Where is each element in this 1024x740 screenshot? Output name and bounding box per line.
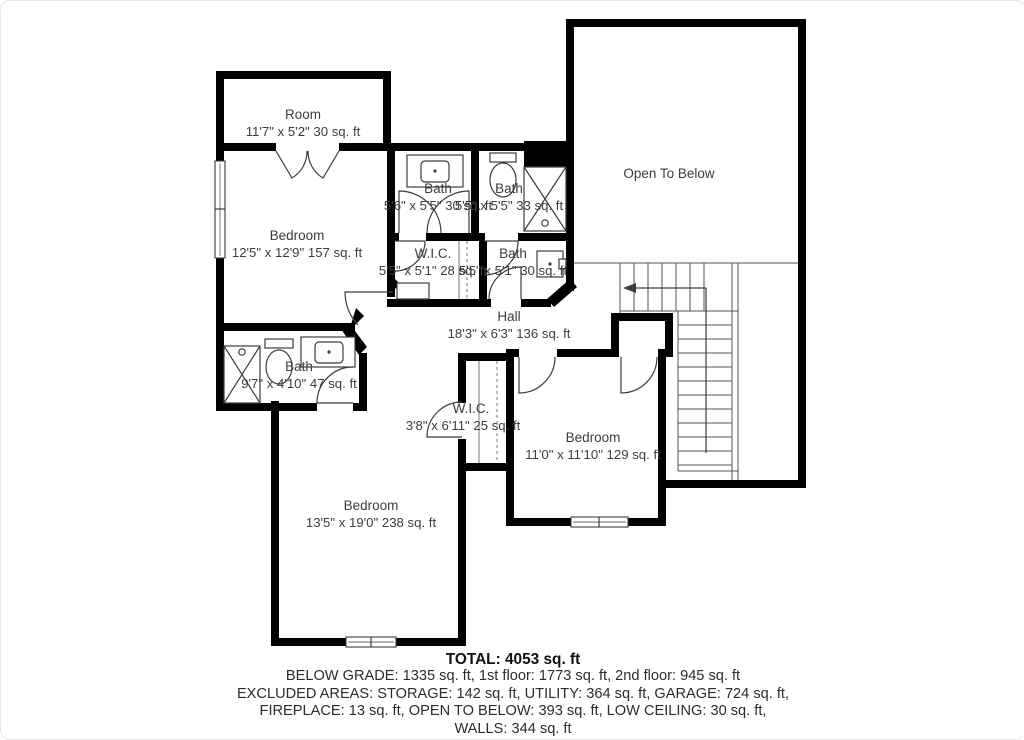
bedroom3-label-dims: 13'5" x 19'0" 238 sq. ft xyxy=(306,515,437,530)
bath4-label-dims: 9'7" x 4'10" 47 sq. ft xyxy=(241,376,357,391)
bedroom1-label-dims: 12'5" x 12'9" 157 sq. ft xyxy=(232,245,363,260)
room-label-dims: 11'7" x 5'2" 30 sq. ft xyxy=(246,124,361,139)
window-bedroom3 xyxy=(346,637,396,647)
floor-plan-drawing: Room 11'7" x 5'2" 30 sq. ft Bedroom 12'5… xyxy=(1,1,1024,739)
area-summary: TOTAL: 4053 sq. ft BELOW GRADE: 1335 sq.… xyxy=(1,651,1024,738)
wic2-label-name: W.I.C. xyxy=(453,401,490,416)
summary-line-walls: WALLS: 344 sq. ft xyxy=(1,721,1024,738)
window-bedroom1 xyxy=(215,161,225,258)
window-bedroom2 xyxy=(571,517,628,527)
floor-plan-page: Room 11'7" x 5'2" 30 sq. ft Bedroom 12'5… xyxy=(0,0,1024,740)
bedroom2-closet-door xyxy=(621,357,657,393)
summary-line-excluded: EXCLUDED AREAS: STORAGE: 142 sq. ft, UTI… xyxy=(1,686,1024,703)
bath3-label-dims: 5'5" x 5'1" 30 sq. ft xyxy=(459,263,568,278)
open-to-below-label: Open To Below xyxy=(623,166,715,181)
bath4-label-name: Bath xyxy=(285,359,313,374)
bath1-label-name: Bath xyxy=(424,181,452,196)
wic2-label-dims: 3'8" x 6'11" 25 sq. ft xyxy=(406,418,521,433)
bath3-label-name: Bath xyxy=(499,246,527,261)
summary-line-features: FIREPLACE: 13 sq. ft, OPEN TO BELOW: 393… xyxy=(1,703,1024,720)
double-door-right xyxy=(308,151,339,178)
summary-total: TOTAL: 4053 sq. ft xyxy=(1,651,1024,668)
bath4-shower-icon xyxy=(224,346,260,403)
bath2-label-dims: 5'5" x 5'5" 33 sq. ft xyxy=(455,198,564,213)
room-label-name: Room xyxy=(285,107,321,122)
bedroom2-label-dims: 11'0" x 11'10" 129 sq. ft xyxy=(525,447,661,462)
hall-label-name: Hall xyxy=(497,309,520,324)
summary-line-floors: BELOW GRADE: 1335 sq. ft, 1st floor: 177… xyxy=(1,668,1024,685)
double-door-left xyxy=(276,151,307,178)
bath2-label-name: Bath xyxy=(495,181,523,196)
bedroom2-hall-door xyxy=(519,357,555,393)
bedroom3-label-name: Bedroom xyxy=(344,498,399,513)
bedroom2-label-name: Bedroom xyxy=(566,430,621,445)
bedroom1-label-name: Bedroom xyxy=(270,228,325,243)
doors xyxy=(276,151,657,437)
wic1-label-name: W.I.C. xyxy=(415,246,452,261)
bedroom1-diagonal-door xyxy=(345,292,393,325)
hall-label-dims: 18'3" x 6'3" 136 sq. ft xyxy=(448,326,571,341)
